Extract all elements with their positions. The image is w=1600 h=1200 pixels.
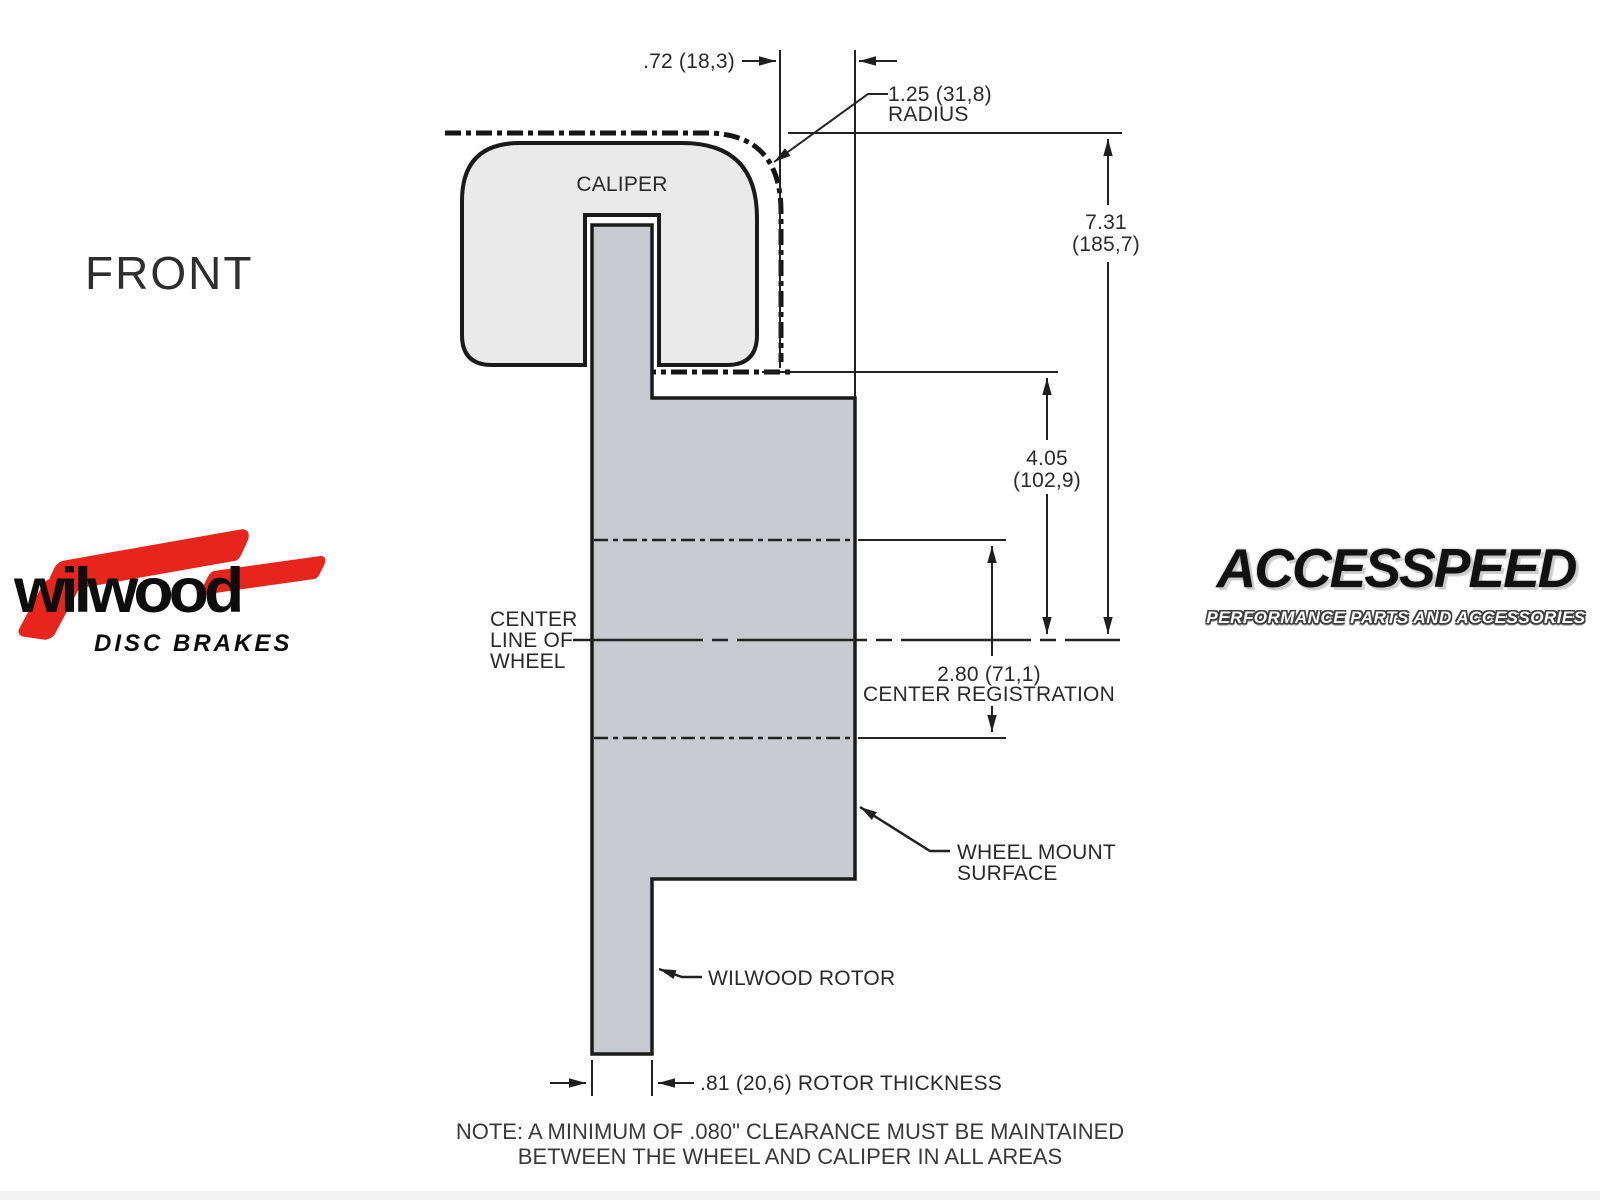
rotor-label: WILWOOD ROTOR bbox=[708, 967, 895, 990]
dim-wheel-offset-text: .72 (18,3) bbox=[643, 50, 735, 73]
dim-overall-height-mm: (185,7) bbox=[1072, 233, 1140, 256]
clearance-note-line2: BETWEEN THE WHEEL AND CALIPER IN ALL ARE… bbox=[518, 1144, 1062, 1169]
drawing-page: FRONT CALIPER CENTER LINE OF WHEEL .72 (… bbox=[0, 0, 1600, 1200]
view-label: FRONT bbox=[85, 247, 253, 299]
dim-overall-height-in: 7.31 bbox=[1085, 211, 1127, 234]
wilwood-logo: wilwood DISC BRAKES bbox=[14, 538, 324, 658]
wilwood-wordmark: wilwood bbox=[14, 554, 324, 626]
accesspeed-wordmark: ACCESSPEED bbox=[1198, 536, 1594, 600]
accesspeed-logo: ACCESSPEED PERFORMANCE PARTS AND ACCESSO… bbox=[1198, 536, 1594, 628]
wheel-mount-label-1: WHEEL MOUNT bbox=[957, 841, 1116, 864]
dim-register-word: CENTER REGISTRATION bbox=[863, 683, 1115, 706]
centerline-label-3: WHEEL bbox=[490, 650, 566, 673]
dim-rotor-thickness-text: .81 (20,6) ROTOR THICKNESS bbox=[700, 1072, 1002, 1095]
wheel-mount-leader-arrow bbox=[860, 807, 950, 851]
caliper-label: CALIPER bbox=[576, 173, 667, 196]
dim-mount-height-mm: (102,9) bbox=[1013, 469, 1081, 492]
centerline-label-1: CENTER bbox=[490, 608, 578, 631]
dim-mount-height-in: 4.05 bbox=[1026, 447, 1068, 470]
page-bottom-strip bbox=[0, 1191, 1600, 1200]
dim-radius-word: RADIUS bbox=[888, 103, 969, 126]
wilwood-tagline: DISC BRAKES bbox=[94, 630, 292, 658]
wheel-mount-label-2: SURFACE bbox=[957, 862, 1058, 885]
radius-leader-arrow bbox=[774, 94, 888, 162]
clearance-note-line1: NOTE: A MINIMUM OF .080" CLEARANCE MUST … bbox=[456, 1119, 1124, 1144]
rotor-leader-arrow bbox=[659, 969, 702, 977]
accesspeed-tagline: PERFORMANCE PARTS AND ACCESSORIES bbox=[1198, 608, 1594, 628]
centerline-label-2: LINE OF bbox=[490, 629, 573, 652]
